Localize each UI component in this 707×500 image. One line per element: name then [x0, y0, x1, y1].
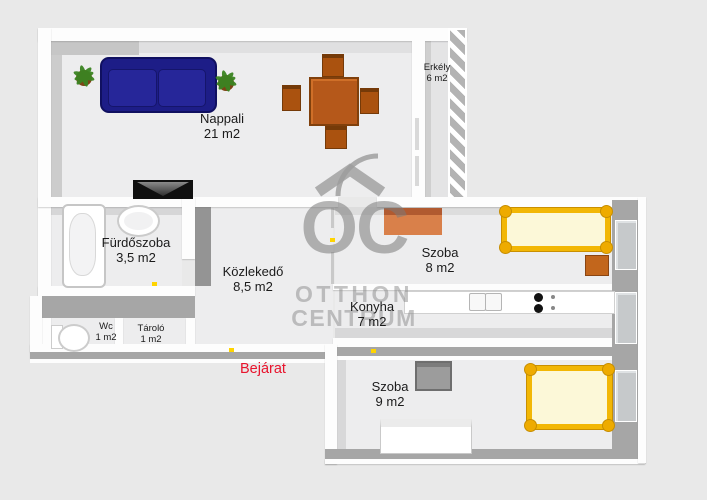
room-area: 7 m2 — [322, 314, 422, 329]
room-area: 1 m2 — [81, 332, 131, 343]
room-name: Konyha — [322, 299, 422, 314]
room-name: Fürdőszoba — [86, 235, 186, 250]
room-name: Nappali — [172, 111, 272, 126]
room-area: 8,5 m2 — [203, 279, 303, 294]
door-marker — [371, 349, 376, 353]
room-name: Szoba — [340, 379, 440, 394]
room-label-konyha: Konyha 7 m2 — [322, 299, 422, 329]
room-name: Szoba — [390, 245, 490, 260]
potted-plant-icon — [215, 70, 238, 93]
room-label-szoba-8: Szoba 8 m2 — [390, 245, 490, 275]
entrance-label: Bejárat — [223, 361, 303, 377]
floor-plan: OC OTTHON CENTRUM Nappali 21 m2 Erkély 6… — [0, 0, 707, 500]
room-name: Tároló — [125, 323, 177, 334]
room-label-erkely: Erkély 6 m2 — [413, 62, 461, 84]
room-name: Közlekedő — [203, 264, 303, 279]
room-name: Erkély — [413, 62, 461, 73]
room-label-szoba-9: Szoba 9 m2 — [340, 379, 440, 409]
room-label-tarolo: Tároló 1 m2 — [125, 323, 177, 345]
room-area: 8 m2 — [390, 260, 490, 275]
room-area: 3,5 m2 — [86, 250, 186, 265]
room-area: 1 m2 — [125, 334, 177, 345]
potted-plant-icon — [73, 65, 96, 88]
room-label-furdoszoba: Fürdőszoba 3,5 m2 — [86, 235, 186, 265]
door-marker — [229, 348, 234, 352]
room-label-kozlekedo: Közlekedő 8,5 m2 — [203, 264, 303, 294]
room-label-wc: Wc 1 m2 — [81, 321, 131, 343]
room-area: 21 m2 — [172, 126, 272, 141]
door-marker — [152, 282, 157, 286]
room-label-nappali: Nappali 21 m2 — [172, 111, 272, 141]
room-area: 6 m2 — [413, 73, 461, 84]
room-name: Wc — [81, 321, 131, 332]
room-area: 9 m2 — [340, 394, 440, 409]
